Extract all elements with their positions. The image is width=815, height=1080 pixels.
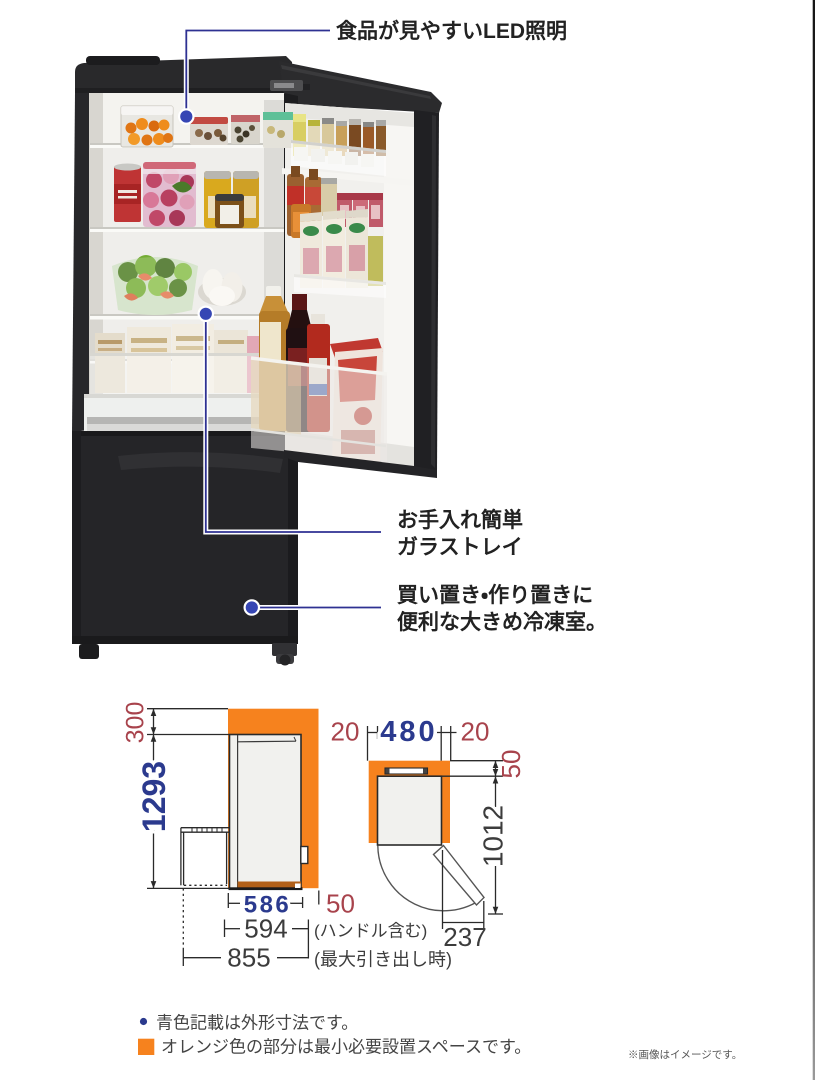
svg-text:お手入れ簡単: お手入れ簡単 xyxy=(397,508,523,532)
svg-text:20: 20 xyxy=(461,717,490,747)
svg-text:※画像はイメージです。: ※画像はイメージです。 xyxy=(628,1048,742,1061)
svg-text:青色記載は外形寸法です。: 青色記載は外形寸法です。 xyxy=(156,1014,358,1033)
svg-text:1012: 1012 xyxy=(478,805,509,867)
svg-text:便利な大きめ冷凍室。: 便利な大きめ冷凍室。 xyxy=(397,610,607,634)
svg-text:オレンジ色の部分は最小必要設置スペースです。: オレンジ色の部分は最小必要設置スペースです。 xyxy=(161,1038,531,1057)
svg-text:買い置き・作り置きに: 買い置き・作り置きに xyxy=(397,583,593,607)
svg-text:50: 50 xyxy=(326,889,355,919)
svg-text:1293: 1293 xyxy=(136,761,172,832)
svg-text:食品が見やすいLED照明: 食品が見やすいLED照明 xyxy=(336,19,567,43)
svg-text:300: 300 xyxy=(122,702,150,744)
svg-text:480: 480 xyxy=(380,716,437,748)
svg-text:237: 237 xyxy=(443,922,486,952)
svg-text:(ハンドル含む): (ハンドル含む) xyxy=(314,922,427,941)
svg-text:(最大引き出し時): (最大引き出し時) xyxy=(314,950,452,970)
svg-text:ガラストレイ: ガラストレイ xyxy=(397,536,523,559)
svg-text:594: 594 xyxy=(244,914,287,944)
svg-text:855: 855 xyxy=(227,943,270,973)
svg-text:50: 50 xyxy=(496,750,526,779)
svg-text:20: 20 xyxy=(331,717,360,747)
